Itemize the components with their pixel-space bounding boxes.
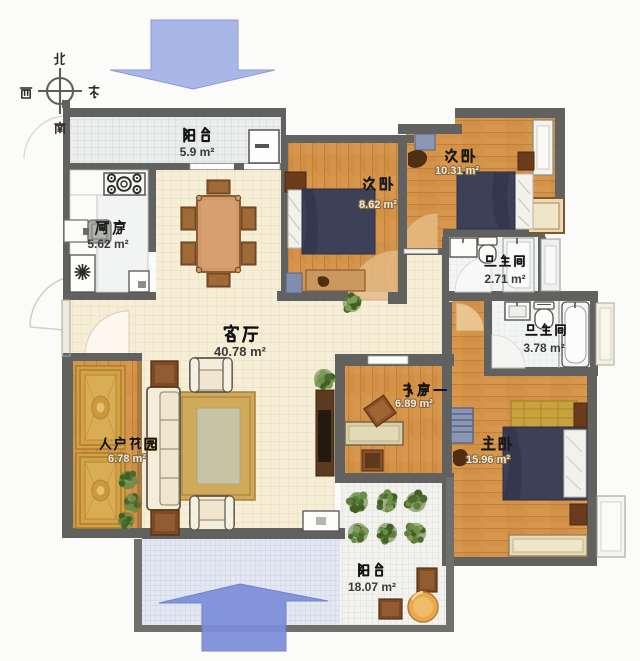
- svg-text:2.71 m²: 2.71 m²: [484, 272, 525, 286]
- svg-text:15.96 m²: 15.96 m²: [466, 454, 510, 466]
- svg-text:8.62 m²: 8.62 m²: [359, 199, 397, 211]
- svg-text:6.89 m²: 6.89 m²: [395, 398, 433, 410]
- svg-text:5.9 m²: 5.9 m²: [180, 145, 215, 159]
- svg-text:18.07 m²: 18.07 m²: [348, 580, 396, 594]
- svg-text:5.62 m²: 5.62 m²: [87, 237, 128, 251]
- svg-text:40.78 m²: 40.78 m²: [214, 344, 267, 359]
- svg-text:6.78 m²: 6.78 m²: [108, 453, 146, 465]
- svg-text:10.31 m²: 10.31 m²: [435, 165, 479, 177]
- svg-text:3.78 m²: 3.78 m²: [523, 341, 564, 355]
